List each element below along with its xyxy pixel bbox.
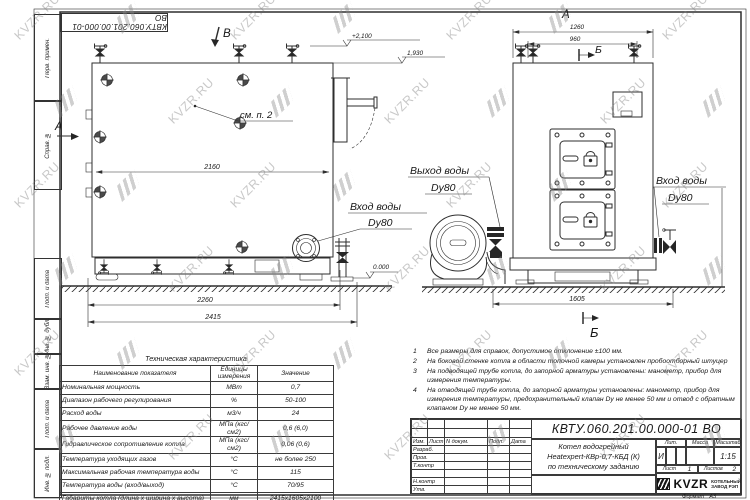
spec-table-grid: Наименование показателяЕдиницы измерения… xyxy=(59,365,334,500)
mass-label: Масса xyxy=(686,439,714,447)
lit-cell xyxy=(676,447,686,465)
blower-fan xyxy=(430,215,487,285)
crosshair-mark-icon xyxy=(100,73,114,87)
water-outlet-label: Выход воды Dy80 xyxy=(408,165,500,227)
margin-field-perv-primen: Перв. примен. xyxy=(34,14,62,102)
company-cell: KVZR КОТЕЛЬНЫЙ ЗАВОД РЭП xyxy=(656,473,742,495)
elevation-2100: +2,100 xyxy=(310,33,420,46)
dim-2160: 2160 xyxy=(203,164,220,171)
roof-valve-icon xyxy=(629,44,641,64)
company-name: КОТЕЛЬНЫЙ ЗАВОД РЭП xyxy=(711,479,741,490)
dim-2260: 2260 xyxy=(196,297,213,304)
lit-value: И xyxy=(656,447,666,465)
format-label: ФорматА3 xyxy=(682,494,716,500)
table-row: Расход водым3/ч24 xyxy=(60,407,334,420)
table-header-row: Наименование показателяЕдиницы измерения… xyxy=(60,366,334,382)
svg-text:Выход воды: Выход воды xyxy=(410,165,469,177)
return-pipe-valve xyxy=(331,238,353,281)
water-inlet-flange xyxy=(293,235,320,262)
product-name: Котел водогрейный Heatexpert-КВр-0,7-КБД… xyxy=(531,439,656,475)
revision-grid: Изм.Лист N докум.Подп. Дата Разраб. Пров… xyxy=(411,419,532,494)
svg-text:0.000: 0.000 xyxy=(373,264,389,271)
water-inlet-valve xyxy=(654,229,676,254)
revision-header-row: Изм.Лист N докум.Подп. Дата xyxy=(412,438,532,446)
note-item: 2На боковой стенке котла в области топоч… xyxy=(413,357,743,366)
crosshair-mark-icon xyxy=(93,185,107,199)
svg-text:см. п. 2: см. п. 2 xyxy=(240,110,273,121)
svg-text:Вход воды: Вход воды xyxy=(350,201,401,213)
dim-1260: 1260 xyxy=(570,24,585,31)
dim-2415: 2415 xyxy=(204,314,221,321)
boiler-front-view: 1260 960 А Б xyxy=(408,9,726,340)
section-mark-b-bottom: Б xyxy=(583,312,599,340)
margin-field-inv-podl: Инв. № подл. xyxy=(34,448,62,498)
roof-valve-icon xyxy=(287,44,299,64)
sheets-cell: Листов2 xyxy=(698,465,742,473)
table-row: Номинальная мощностьМВт0,7 xyxy=(60,381,334,394)
margin-field-vzam-inv: Взам. инв. № xyxy=(34,353,62,390)
svg-text:+2,100: +2,100 xyxy=(352,33,372,40)
scale-value: 1:15 xyxy=(714,447,742,465)
note-item: 4На отводящей трубе котла, до запорной а… xyxy=(413,386,743,413)
ground-hatch xyxy=(422,287,725,293)
table-row: Максимальная рабочая температура воды°С1… xyxy=(60,466,334,479)
front-base-frame xyxy=(510,258,656,284)
margin-field-sprav-no: Справ. № xyxy=(34,100,62,190)
table-row: Температура воды (вход/выход)°С70/95 xyxy=(60,479,334,492)
section-mark-b-top: Б xyxy=(579,44,602,61)
note-item: 3На подводящей трубе котла, до запорной … xyxy=(413,367,743,385)
svg-text:В: В xyxy=(223,28,231,40)
dim-960: 960 xyxy=(570,36,581,43)
svg-text:Вход воды: Вход воды xyxy=(656,175,707,187)
see-note-callout: см. п. 2 xyxy=(194,105,293,121)
title-block: Изм.Лист N докум.Подп. Дата Разраб. Пров… xyxy=(410,418,741,494)
drain-valve-icon xyxy=(224,259,234,275)
roof-valve-icon xyxy=(234,44,246,64)
roof-valve-icon xyxy=(95,44,107,64)
spec-table-title: Техническая характеристика xyxy=(59,354,333,363)
crosshair-mark-icon xyxy=(235,240,249,254)
smoke-duct xyxy=(331,78,377,149)
table-row: Габариты котла (длина х ширина х высота)… xyxy=(60,492,334,500)
kvzr-logo-icon xyxy=(657,478,670,490)
doc-number: КВТУ.060.201.00.000-01 ВО xyxy=(531,419,742,439)
drain-valve-icon xyxy=(152,259,162,275)
lit-cell xyxy=(666,447,676,465)
note-item: 1Все размеры для справок, допустимое отк… xyxy=(413,347,743,356)
boiler-side-view: 2160 xyxy=(54,27,445,327)
svg-text:Dy80: Dy80 xyxy=(368,217,393,229)
view-label-a: А xyxy=(561,9,570,21)
svg-text:Dy80: Dy80 xyxy=(668,192,693,204)
top-stamp: КВТУ.060.201.00.000-01 ВО xyxy=(60,13,168,32)
svg-text:Б: Б xyxy=(595,44,602,56)
furnace-door-upper xyxy=(550,129,615,189)
table-row: Рабочее давление водыМПа (кгс/см2)0,6 (6… xyxy=(60,420,334,436)
spec-table: Техническая характеристика Наименование … xyxy=(59,354,333,500)
table-row: Гидравлическое сопротивление котлаМПа (к… xyxy=(60,437,334,453)
table-row: Температура уходящих газов°Сне более 250 xyxy=(60,453,334,466)
margin-field-inv-dubl: Инв. № дубл. xyxy=(34,318,62,355)
drawing-sheet: 2160 xyxy=(0,0,750,500)
water-inlet-label-front: Вход воды Dy80 xyxy=(653,175,726,237)
control-box xyxy=(613,92,642,117)
crosshair-mark-icon xyxy=(236,73,250,87)
drain-valve-icon xyxy=(99,259,109,275)
dim-1605: 1605 xyxy=(569,296,585,303)
kvzr-logo-text: KVZR xyxy=(673,477,708,491)
section-arrow-b: В xyxy=(211,27,231,47)
mass-value xyxy=(686,447,714,465)
ground-hatch xyxy=(62,286,392,292)
elevation-0000: 0.000 xyxy=(353,264,398,278)
top-stamp-number: КВТУ.060.201.00.000-01 ВО xyxy=(61,14,167,32)
lit-label: Лит. xyxy=(656,439,686,447)
roof-valve-icon xyxy=(528,44,540,64)
margin-field-podp-data-1: Подп. и дата xyxy=(34,258,62,320)
furnace-door-lower xyxy=(550,190,615,250)
sheet-cell: Лист1 xyxy=(656,465,698,473)
scale-label: Масштаб xyxy=(714,439,742,447)
svg-text:1,930: 1,930 xyxy=(407,50,423,57)
water-outlet-valve xyxy=(487,227,505,284)
water-inlet-label: Вход воды Dy80 xyxy=(318,201,427,241)
svg-text:Б: Б xyxy=(590,325,599,340)
base-frame xyxy=(95,258,330,280)
table-row: Диапазон рабочего регулирования%50-100 xyxy=(60,394,334,407)
roof-valve-icon xyxy=(516,44,528,64)
empty-cell xyxy=(531,475,656,495)
crosshair-mark-icon xyxy=(93,130,107,144)
margin-field-podp-data-2: Подп. и дата xyxy=(34,388,62,450)
elevation-1930: 1,930 xyxy=(333,50,445,63)
notes-list: 1Все размеры для справок, допустимое отк… xyxy=(413,347,743,414)
svg-text:Dy80: Dy80 xyxy=(431,182,456,194)
